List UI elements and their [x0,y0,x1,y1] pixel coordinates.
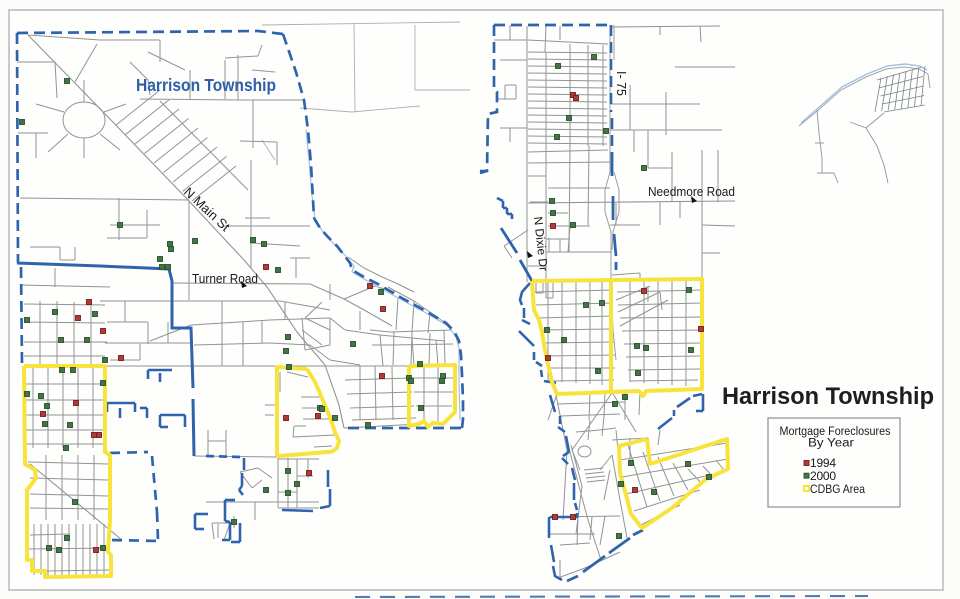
svg-text:Turner Road: Turner Road [192,271,258,286]
svg-text:CDBG Area: CDBG Area [810,482,865,496]
svg-text:By Year: By Year [808,438,854,450]
svg-text:I- 75: I- 75 [614,71,628,96]
svg-text:Mortgage Foreclosures: Mortgage Foreclosures [780,426,891,438]
svg-text:1994: 1994 [810,456,836,470]
svg-text:2000: 2000 [810,469,836,483]
svg-text:Harrison Township: Harrison Township [136,75,276,95]
svg-text:Harrison Township: Harrison Township [722,383,934,410]
